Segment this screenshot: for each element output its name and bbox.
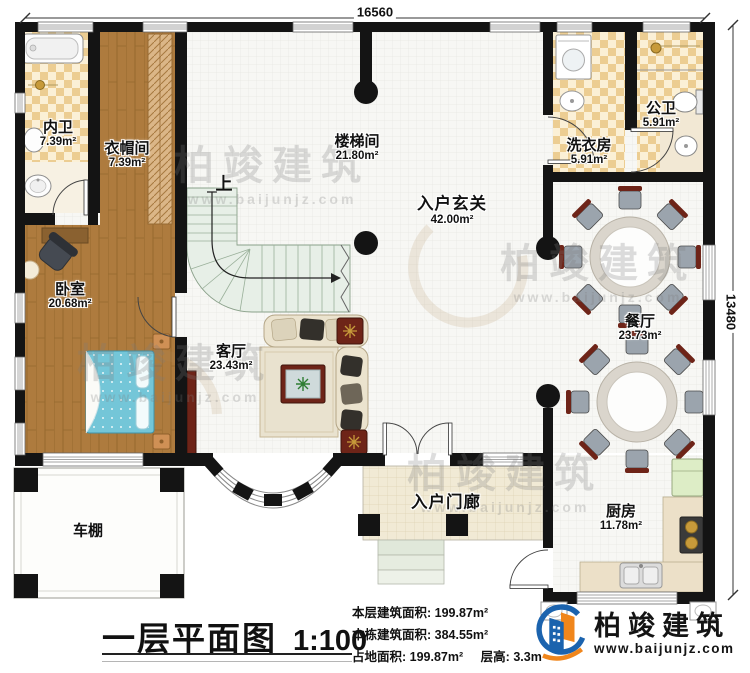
- room-label-carport: 车棚: [73, 522, 103, 539]
- wardrobe: [148, 34, 172, 224]
- dimension-width: 16560: [354, 5, 396, 20]
- company-logo-icon: [534, 601, 588, 667]
- fridge: [672, 459, 703, 496]
- company-logo: 柏竣建筑 www.baijunjz.com: [534, 601, 735, 667]
- room-label-public-bath: 公卫5.91m²: [643, 100, 679, 130]
- room-label-laundry: 洗衣房5.91m²: [566, 137, 611, 167]
- coffee-table: [281, 365, 325, 403]
- title-underline: [102, 653, 352, 662]
- porch-steps: [378, 540, 444, 584]
- room-label-cloakroom: 衣帽间7.39m²: [104, 140, 149, 170]
- room-label-kitchen: 厨房11.78m²: [600, 503, 642, 533]
- sink-laundry: [560, 91, 584, 111]
- floor-plan-sheet: 柏竣建筑www.baijunjz.com 柏竣建筑www.baijunjz.co…: [0, 0, 750, 673]
- sink-public: [675, 136, 697, 156]
- tv-cabinet: [187, 371, 196, 455]
- room-label-master-bath: 内卫7.39m²: [40, 119, 76, 149]
- dining-table: [559, 186, 701, 328]
- bed: [86, 351, 154, 433]
- room-label-stairwell: 楼梯间21.80m²: [334, 133, 379, 163]
- room-label-entry-porch: 入户门廊: [411, 494, 481, 513]
- stove: [680, 517, 703, 553]
- room-label-living-room: 客厅23.43m²: [210, 343, 253, 373]
- sink-master: [25, 175, 51, 197]
- stairs-up-label: 上: [216, 170, 233, 195]
- bathtub: [21, 34, 83, 63]
- area-statistics: 本层建筑面积: 199.87m² 本栋建筑面积: 384.55m² 占地面积: …: [352, 602, 542, 668]
- room-label-dining-room: 餐厅23.73m²: [619, 313, 662, 343]
- washing-machine: [556, 35, 591, 79]
- kitchen-sink: [620, 563, 662, 588]
- dimension-height: 13480: [724, 291, 739, 333]
- stat-building-area: 本栋建筑面积: 384.55m²: [352, 624, 542, 646]
- dining-table: [566, 331, 708, 473]
- stat-land-area-and-height: 占地面积: 199.87m² 层高: 3.3m: [352, 646, 542, 668]
- company-url: www.baijunjz.com: [594, 641, 735, 656]
- stat-floor-area: 本层建筑面积: 199.87m²: [352, 602, 542, 624]
- room-label-bedroom: 卧室20.68m²: [49, 281, 92, 311]
- company-name: 柏竣建筑: [594, 612, 735, 640]
- bay-window: [203, 455, 344, 508]
- room-label-entry-hall: 入户玄关42.00m²: [417, 195, 487, 227]
